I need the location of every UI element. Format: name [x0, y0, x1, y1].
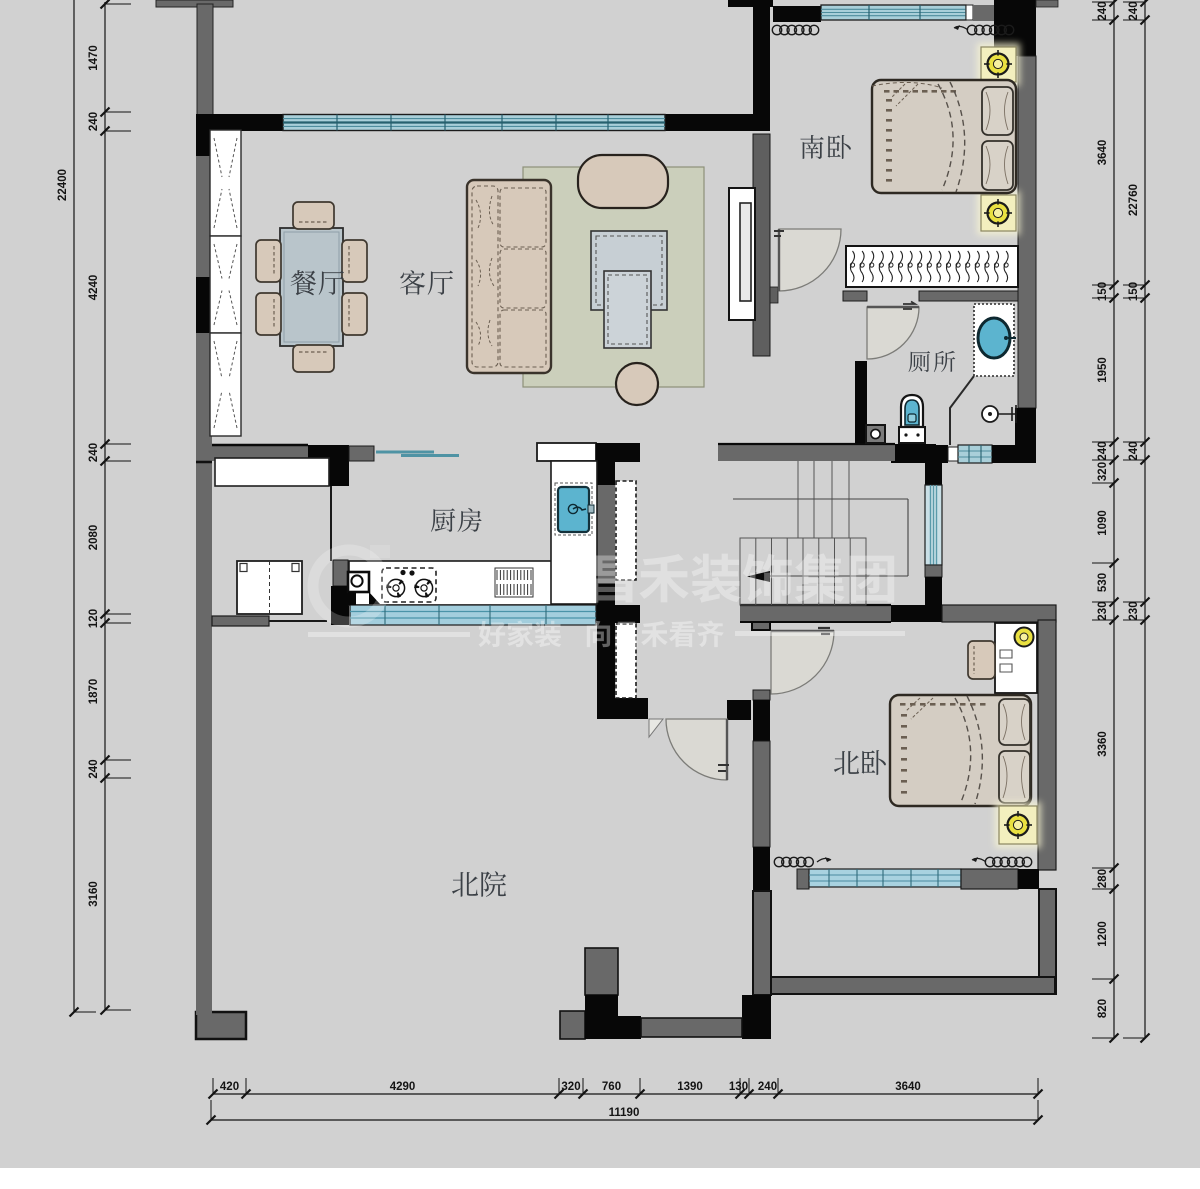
- svg-text:760: 760: [602, 1081, 621, 1093]
- svg-text:240: 240: [88, 759, 100, 778]
- svg-text:4240: 4240: [88, 275, 100, 301]
- svg-text:320: 320: [561, 1081, 580, 1093]
- svg-text:11190: 11190: [609, 1107, 640, 1119]
- svg-text:420: 420: [220, 1081, 239, 1093]
- svg-text:1870: 1870: [88, 679, 100, 705]
- svg-text:280: 280: [1097, 869, 1109, 888]
- svg-text:150: 150: [1097, 282, 1109, 301]
- svg-text:1200: 1200: [1097, 921, 1109, 947]
- svg-text:3160: 3160: [88, 881, 100, 907]
- svg-text:1390: 1390: [677, 1081, 703, 1093]
- svg-text:150: 150: [1128, 282, 1140, 301]
- svg-text:230: 230: [1128, 601, 1140, 620]
- svg-text:22400: 22400: [57, 169, 69, 201]
- svg-text:3640: 3640: [895, 1081, 921, 1093]
- svg-text:22760: 22760: [1128, 184, 1140, 216]
- svg-text:120: 120: [88, 609, 100, 628]
- svg-text:240: 240: [1097, 441, 1109, 460]
- svg-text:530: 530: [1097, 573, 1109, 592]
- svg-text:230: 230: [1097, 601, 1109, 620]
- svg-text:1090: 1090: [1097, 510, 1109, 536]
- svg-text:240: 240: [1128, 1, 1140, 20]
- svg-text:320: 320: [1097, 462, 1109, 481]
- svg-text:240: 240: [1128, 441, 1140, 460]
- svg-text:240: 240: [758, 1081, 777, 1093]
- svg-text:130: 130: [729, 1081, 748, 1093]
- svg-text:3360: 3360: [1097, 731, 1109, 757]
- svg-text:240: 240: [88, 443, 100, 462]
- svg-text:2080: 2080: [88, 525, 100, 551]
- svg-text:4290: 4290: [390, 1081, 416, 1093]
- svg-text:1470: 1470: [88, 45, 100, 71]
- svg-text:3640: 3640: [1097, 140, 1109, 166]
- svg-text:1950: 1950: [1097, 357, 1109, 383]
- svg-text:240: 240: [1097, 1, 1109, 20]
- svg-text:820: 820: [1097, 999, 1109, 1018]
- svg-text:240: 240: [88, 112, 100, 131]
